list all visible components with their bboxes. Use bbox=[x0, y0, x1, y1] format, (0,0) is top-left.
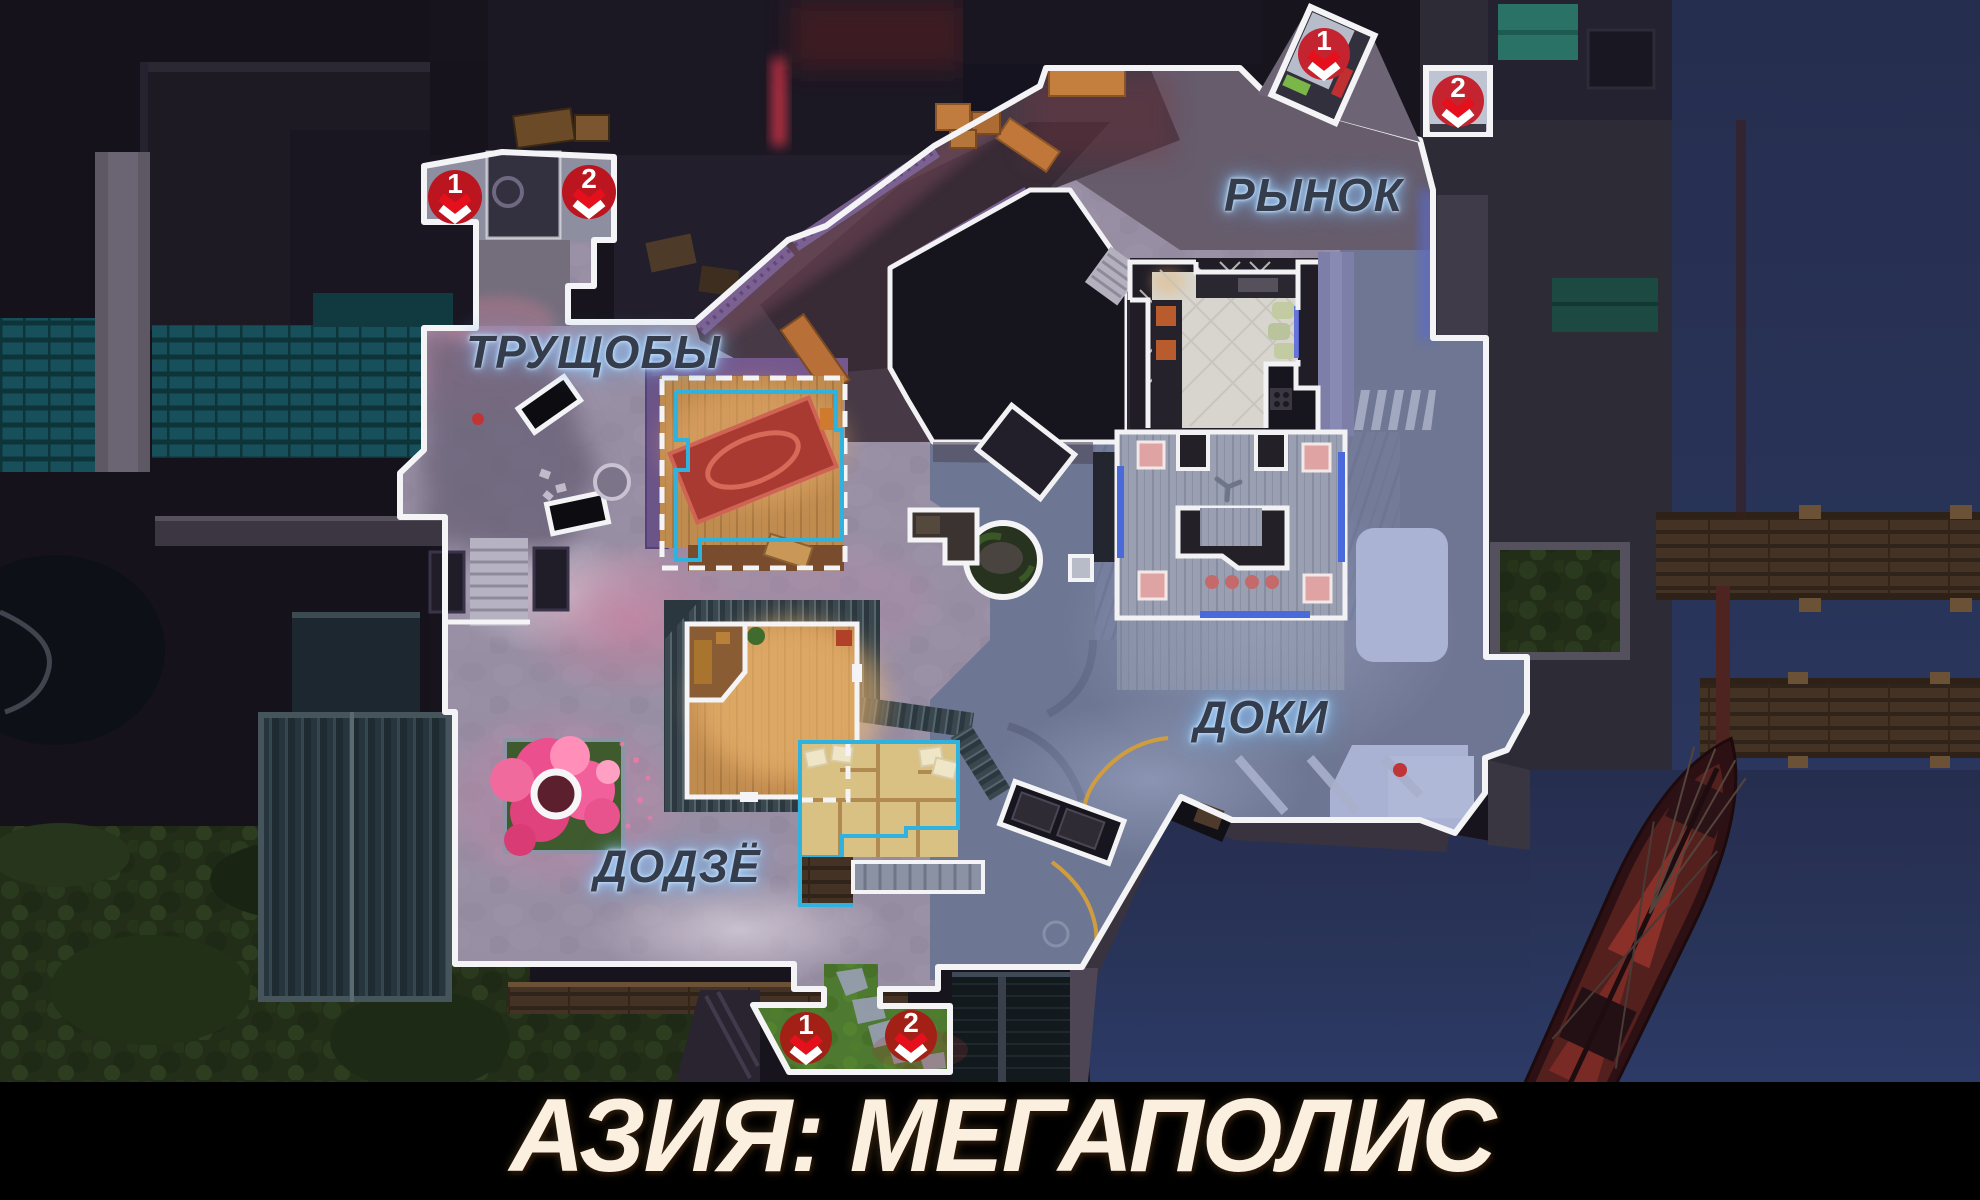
svg-text:1: 1 bbox=[1316, 25, 1332, 56]
svg-text:1: 1 bbox=[447, 168, 463, 199]
svg-text:1: 1 bbox=[798, 1009, 814, 1040]
svg-text:2: 2 bbox=[581, 163, 597, 194]
svg-text:2: 2 bbox=[903, 1007, 919, 1038]
svg-text:2: 2 bbox=[1450, 72, 1466, 103]
